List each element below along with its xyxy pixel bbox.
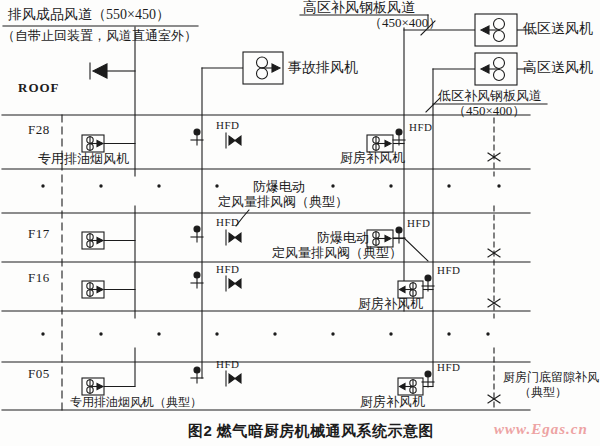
roof-label: ROOF bbox=[18, 81, 60, 96]
label-exhaust-duct: 排风成品风道（550×450） bbox=[8, 7, 170, 23]
hfd-tag: HFD bbox=[437, 264, 461, 277]
hfd-tag: HFD bbox=[216, 358, 240, 371]
label-door-gap-makeup: 厨房门底留隙补风 bbox=[503, 371, 599, 385]
floor-label-f17: F17 bbox=[28, 227, 50, 242]
label-high-zone-makeup-duct: 高区补风钢板风道 bbox=[303, 0, 415, 16]
label-smoke-exhaust-fan-typical: 专用排油烟风机（典型） bbox=[70, 396, 202, 410]
label-accident-exhaust-fan: 事故排风机 bbox=[288, 60, 358, 76]
label-high-zone-supply-fan: 高区送风机 bbox=[523, 60, 593, 76]
hfd-tag: HFD bbox=[437, 361, 461, 374]
label-low-zone-supply-fan: 低区送风机 bbox=[523, 21, 593, 37]
label-kitchen-makeup-fan: 厨房补风机 bbox=[358, 297, 423, 312]
smoke-exhaust-fan-icons bbox=[82, 135, 104, 395]
check-valve-icon bbox=[90, 63, 107, 79]
hfd-tag: HFD bbox=[407, 217, 431, 230]
low-zone-supply-fan-icon bbox=[475, 14, 517, 46]
label-low-zone-makeup-duct: 低区补风钢板风道 bbox=[438, 89, 542, 104]
high-zone-supply-fan-icon bbox=[475, 53, 517, 85]
floor-label-f28: F28 bbox=[28, 123, 50, 138]
kitchen-makeup-fan-icons bbox=[367, 135, 423, 395]
label-exhaust-duct-note: （自带止回装置，风道直通室外） bbox=[2, 29, 197, 44]
accident-exhaust-fan-icon bbox=[243, 52, 283, 84]
label-door-gap-makeup-typical: （典型） bbox=[519, 386, 567, 400]
label-low-zone-makeup-size: （450×400） bbox=[453, 104, 525, 119]
label-high-zone-makeup-size: （450×400） bbox=[369, 16, 441, 31]
label-cv-valve-typical-1: 定风量排风阀（典型） bbox=[218, 195, 348, 210]
exhaust-valve-icons bbox=[226, 133, 241, 386]
hfd-tag: HFD bbox=[216, 263, 240, 276]
label-cv-valve-typical-2: 定风量排风阀（典型） bbox=[272, 246, 402, 261]
floor-label-f16: F16 bbox=[28, 271, 50, 286]
label-kitchen-makeup-fan: 厨房补风机 bbox=[340, 151, 405, 166]
label-kitchen-makeup-fan: 厨房补风机 bbox=[360, 395, 425, 410]
label-explosion-proof-1: 防爆电动 bbox=[253, 180, 305, 195]
figure-caption: 图2 燃气暗厨房机械通风系统示意图 bbox=[188, 422, 434, 439]
ventilation-schematic: 排风成品风道（550×450） （自带止回装置，风道直通室外） ROOF 高区补… bbox=[0, 0, 600, 446]
hfd-tag: HFD bbox=[409, 121, 433, 134]
watermark: www.Egas.cn bbox=[494, 421, 588, 438]
label-smoke-exhaust-fan: 专用排油烟风机 bbox=[38, 152, 129, 167]
hfd-tag: HFD bbox=[216, 216, 240, 229]
floor-label-f05: F05 bbox=[28, 367, 50, 382]
label-explosion-proof-2: 防爆电动 bbox=[317, 231, 369, 246]
hfd-tag: HFD bbox=[216, 119, 240, 132]
